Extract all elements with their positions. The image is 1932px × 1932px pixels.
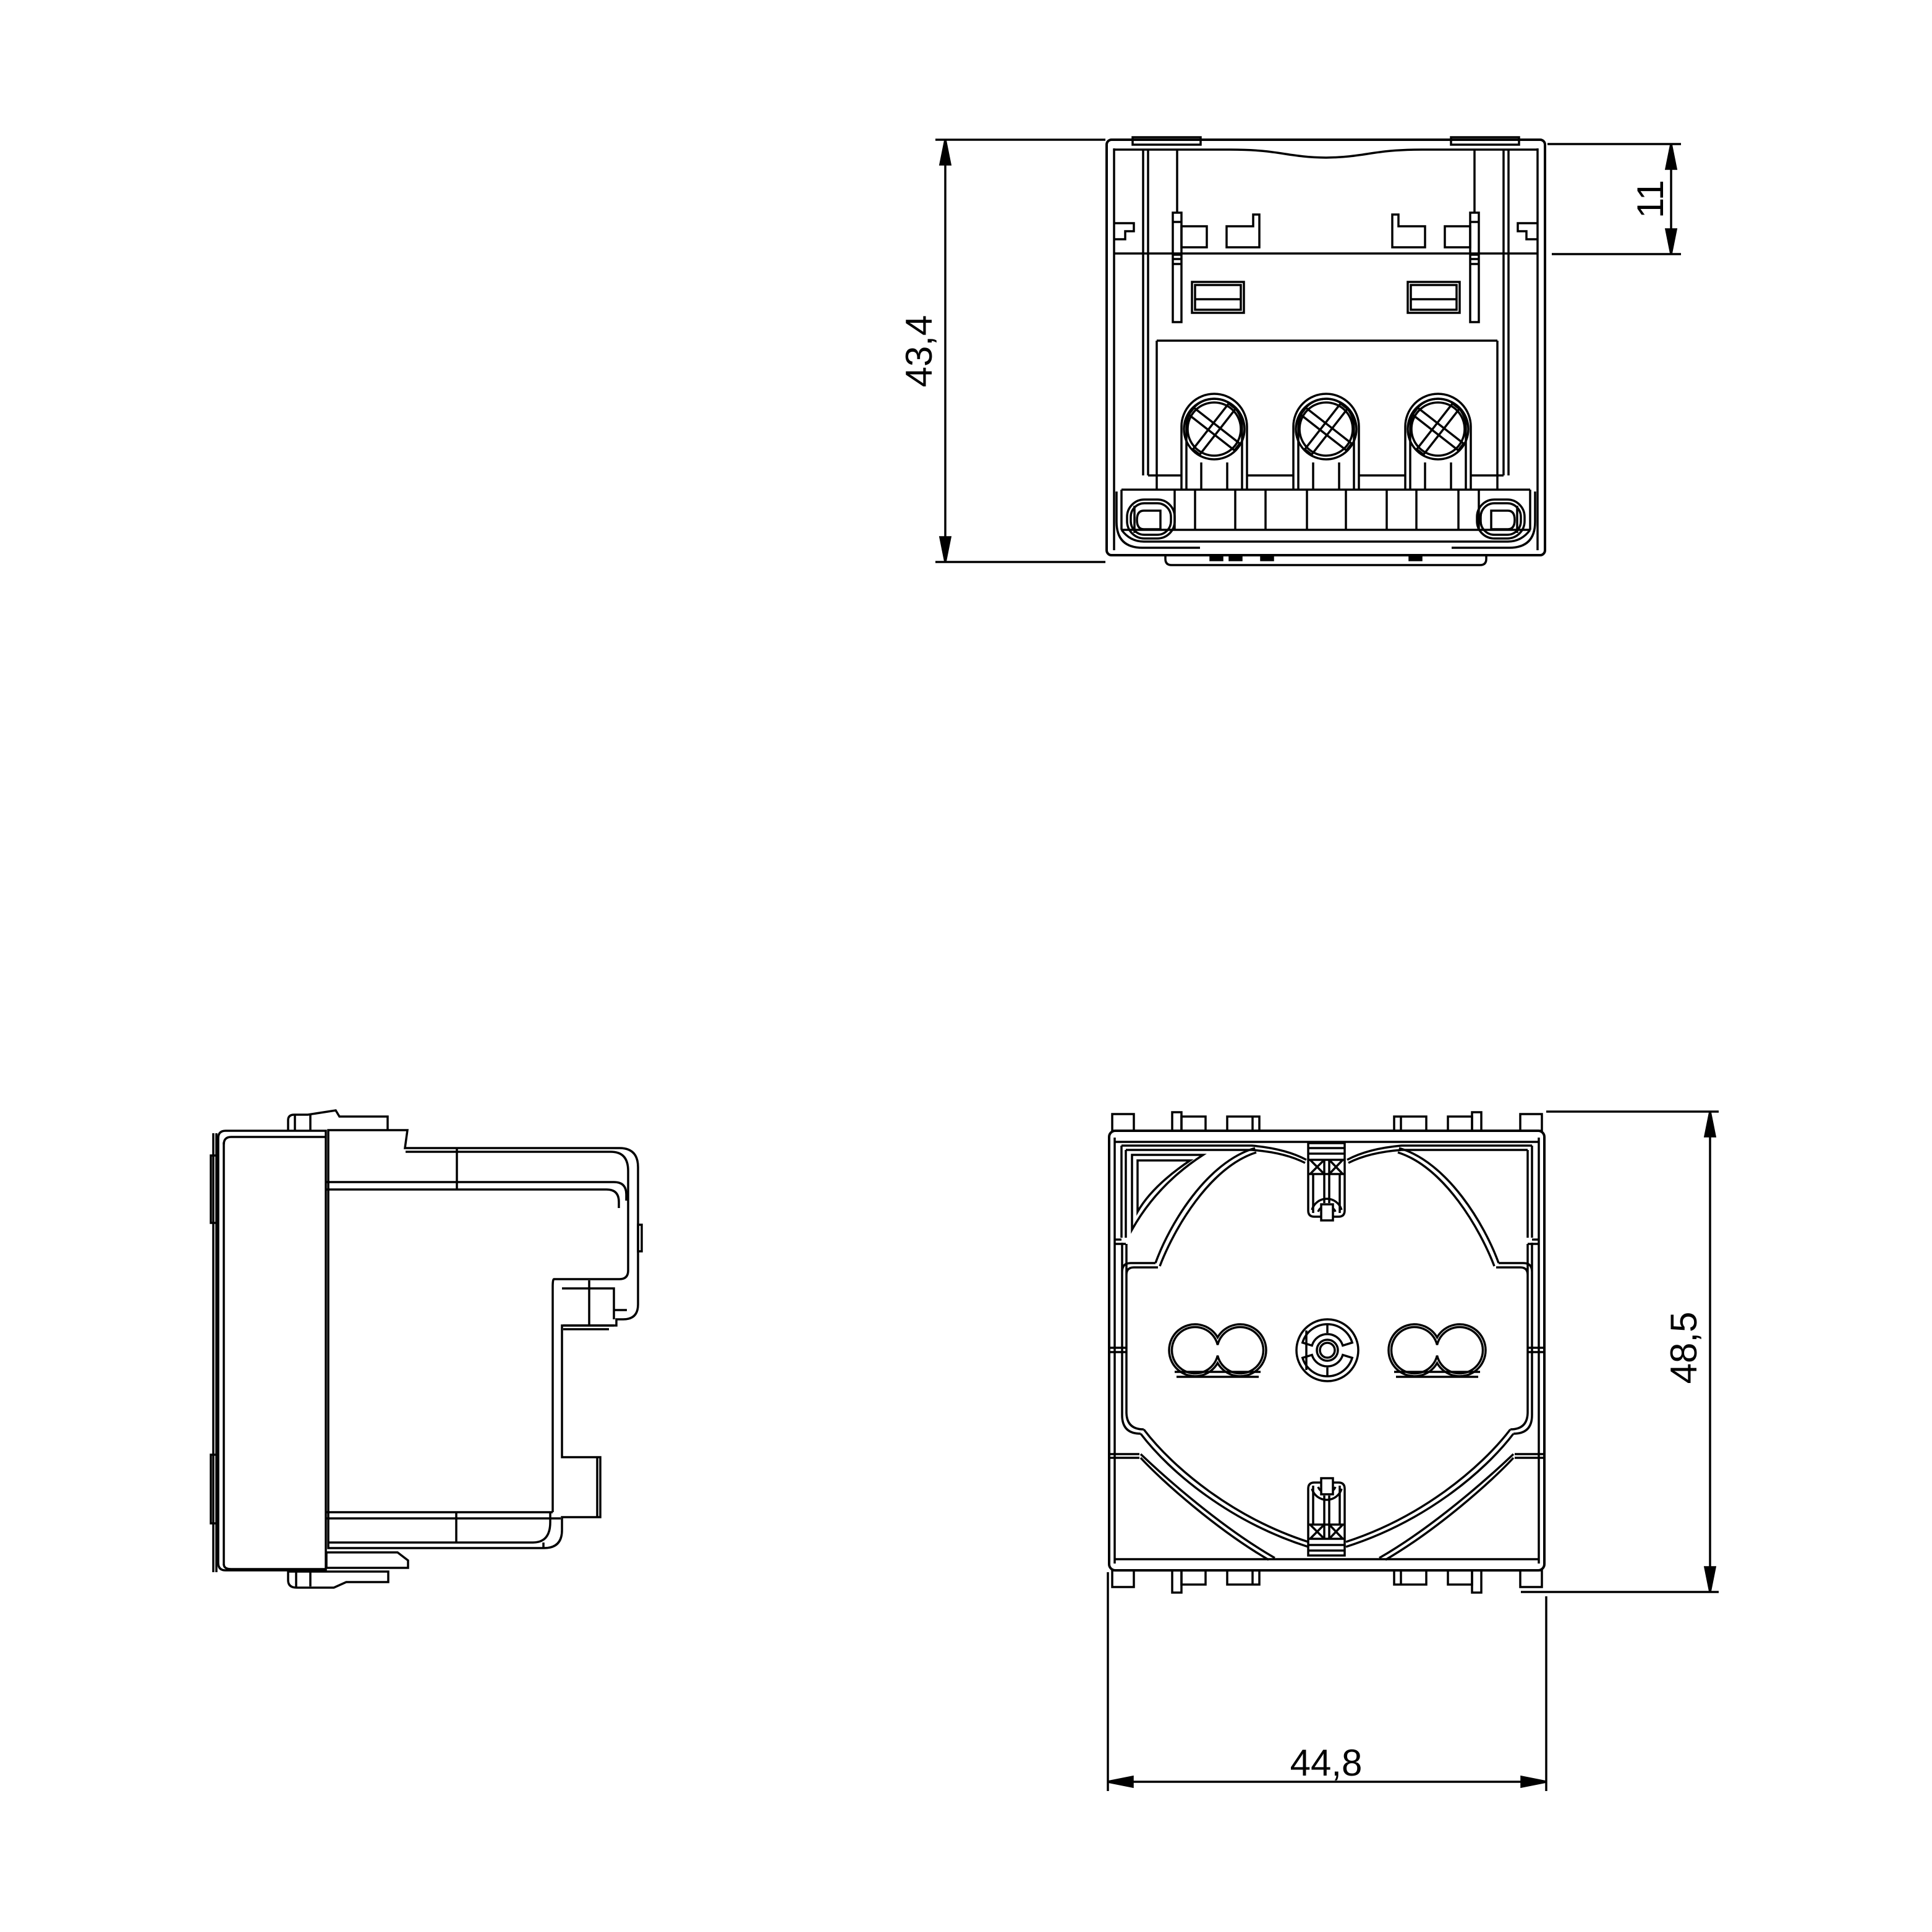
svg-text:11: 11	[1630, 180, 1671, 218]
svg-text:48,5: 48,5	[1663, 1312, 1704, 1384]
svg-text:43,4: 43,4	[898, 315, 940, 388]
svg-text:44,8: 44,8	[1290, 1742, 1363, 1784]
